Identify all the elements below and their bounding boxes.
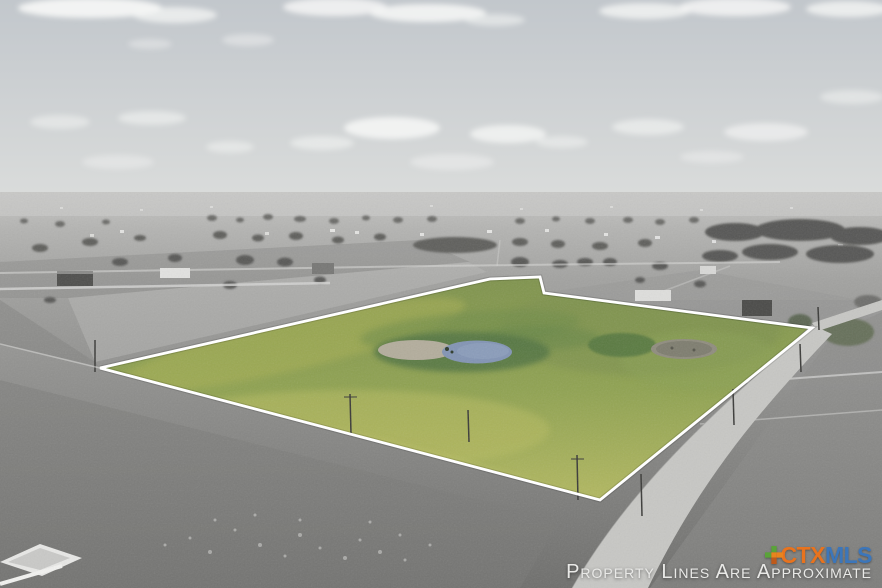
aerial-photo-scene (0, 0, 882, 588)
ground-texture (0, 192, 882, 588)
listing-photo: CTXMLS Property Lines Are Approximate (0, 0, 882, 588)
sky (0, 0, 882, 200)
